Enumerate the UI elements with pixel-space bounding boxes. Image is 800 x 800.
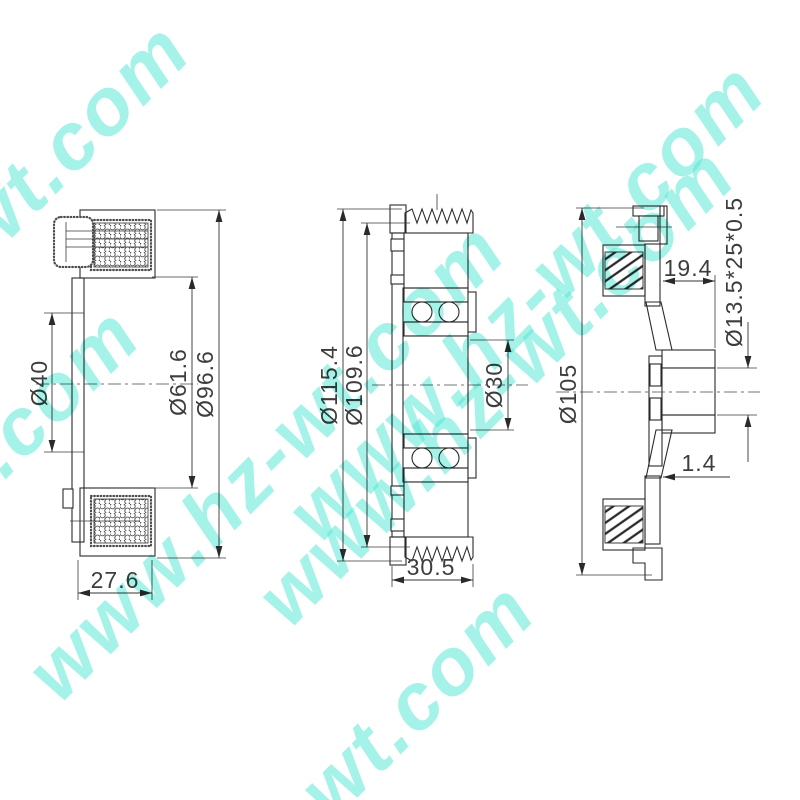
drawing-canvas: Ø40 Ø61.6 Ø96.6 27.6: [0, 0, 800, 800]
dim-label-30-5: 30.5: [407, 554, 456, 580]
web-slot: [391, 239, 404, 251]
damper-rubber-bottom: [605, 506, 643, 543]
connector-body: [54, 217, 93, 267]
dim-label-spline-spec: Ø13.5*25*0.5: [721, 197, 747, 347]
boss-bore: [662, 368, 715, 415]
dim-label-d96-6: Ø96.6: [192, 350, 218, 418]
engineering-drawing-page: Ø40 Ø61.6 Ø96.6 27.6: [0, 0, 800, 800]
dim-label-d61-6: Ø61.6: [165, 348, 191, 416]
hub-collar: [649, 356, 662, 466]
coil-windings-top: [94, 223, 148, 267]
dim-label-1-4: 1.4: [682, 450, 717, 476]
mounting-tab: [63, 489, 73, 508]
